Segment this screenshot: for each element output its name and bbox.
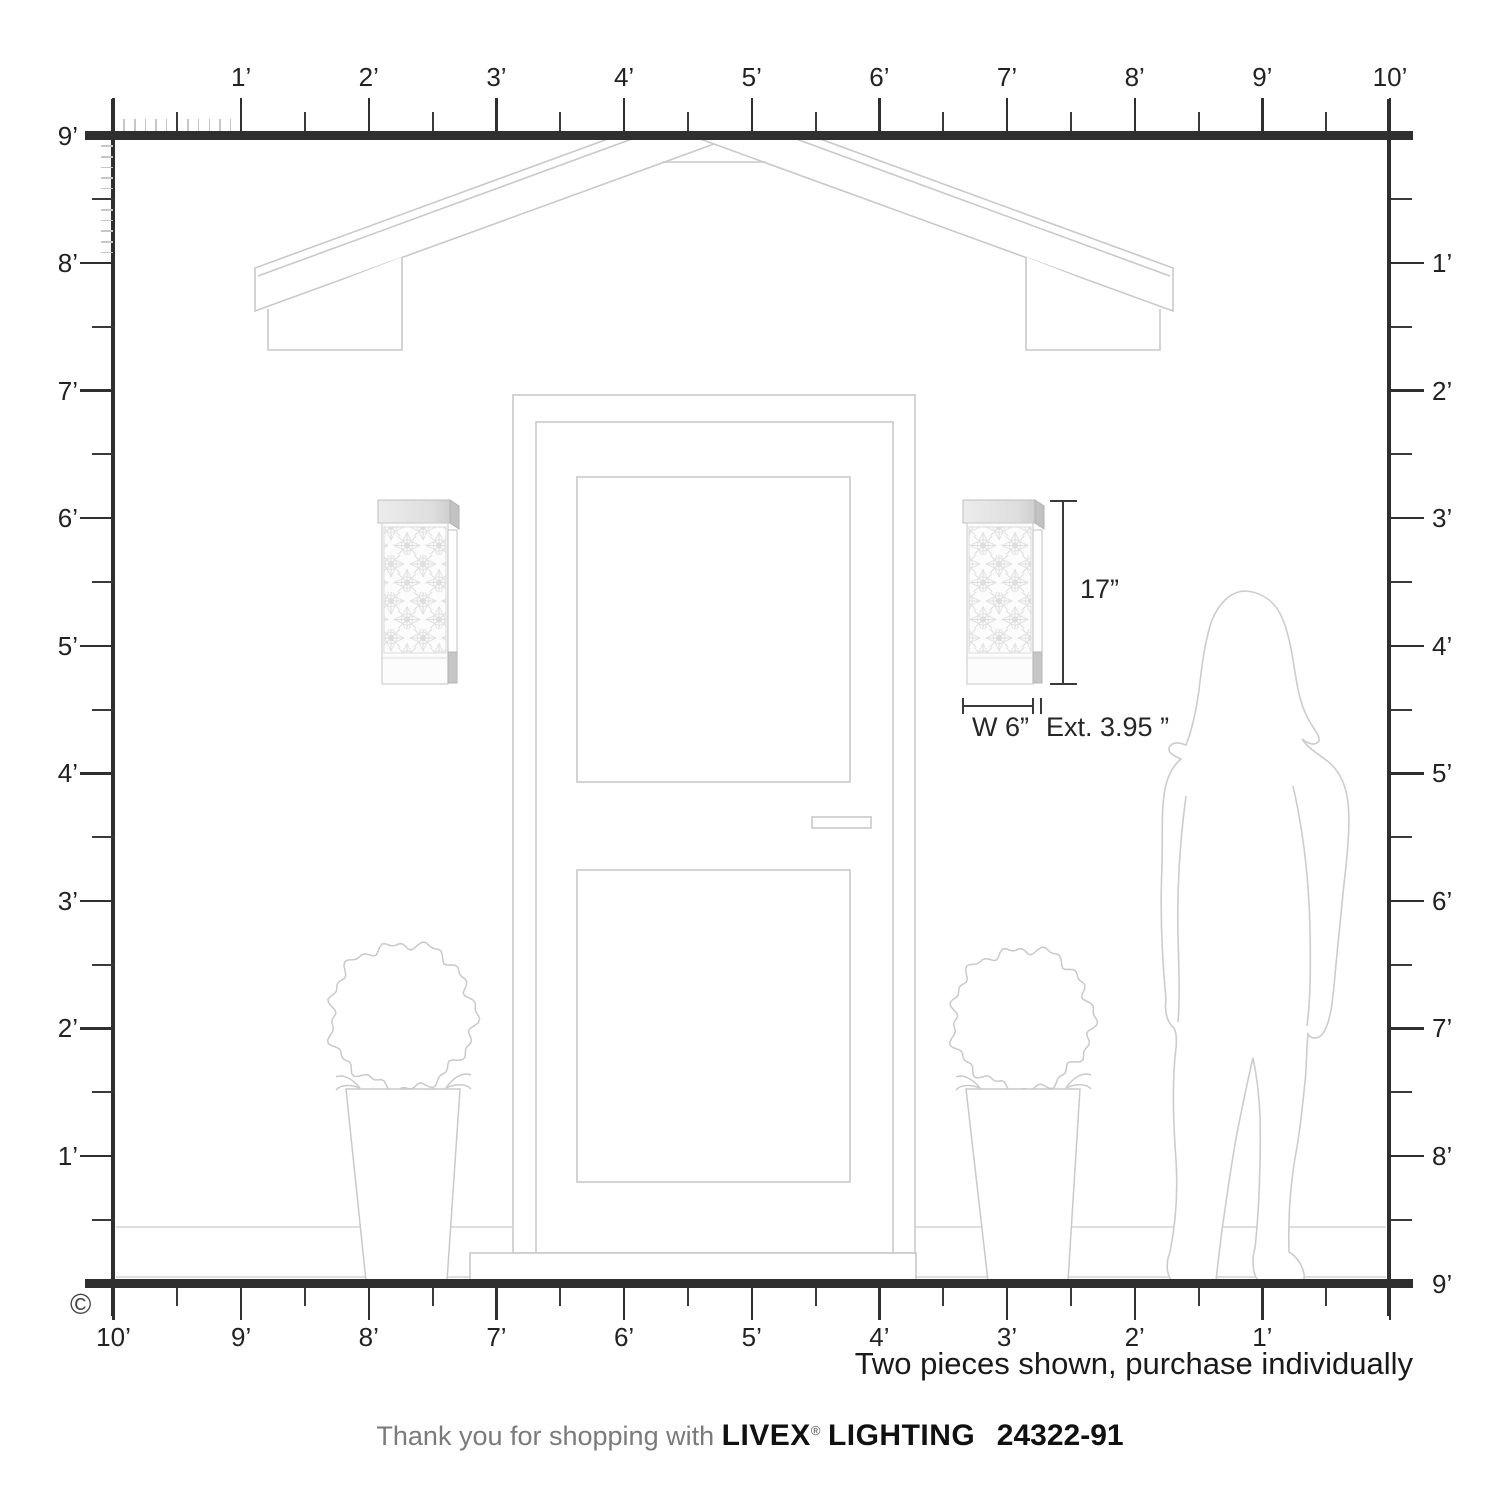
ruler-tick-top-inch bbox=[145, 119, 147, 131]
ruler-label-top: 6’ bbox=[869, 62, 889, 92]
width-dimension-label: W 6” bbox=[972, 712, 1029, 743]
ruler-tick-right-major bbox=[1391, 262, 1424, 265]
ruler-tick-bottom-half bbox=[304, 1288, 306, 1306]
ruler-tick-left-half bbox=[92, 453, 113, 455]
ruler-tick-right-major bbox=[1391, 1155, 1424, 1158]
ruler-tick-top-inch bbox=[134, 119, 136, 131]
ruler-tick-bottom-major bbox=[368, 1288, 371, 1320]
ruler-tick-bottom-half bbox=[432, 1288, 434, 1306]
ruler-tick-bottom-major bbox=[878, 1288, 881, 1320]
ruler-label-top: 2’ bbox=[359, 62, 379, 92]
footer-line: Thank you for shopping with LIVEX® LIGHT… bbox=[0, 1419, 1500, 1453]
footer-thanks-text: Thank you for shopping with bbox=[376, 1421, 714, 1451]
ruler-tick-top-major bbox=[878, 98, 881, 131]
ruler-tick-left-major bbox=[80, 262, 113, 265]
ruler-tick-top-major bbox=[1261, 98, 1264, 131]
ruler-tick-bottom-half bbox=[942, 1288, 944, 1306]
ruler-label-bottom: 7’ bbox=[486, 1322, 506, 1352]
ruler-tick-bottom-half bbox=[559, 1288, 561, 1306]
ruler-tick-top-major bbox=[751, 98, 754, 131]
ruler-tick-bottom-half bbox=[1070, 1288, 1072, 1306]
ruler-tick-left-half bbox=[92, 581, 113, 583]
ruler-tick-top-half bbox=[942, 112, 944, 131]
ruler-label-left: 8’ bbox=[58, 248, 78, 278]
ruler-label-bottom: 6’ bbox=[614, 1322, 634, 1352]
ruler-tick-top-half bbox=[432, 112, 434, 131]
height-dimension-label: 17” bbox=[1080, 574, 1119, 605]
ruler-label-top: 4’ bbox=[614, 62, 634, 92]
ruler-bar-bottom bbox=[85, 1279, 1413, 1288]
ruler-tick-top-inch bbox=[155, 119, 157, 131]
ruler-tick-bottom-major bbox=[1261, 1288, 1264, 1320]
ruler-label-left: 1’ bbox=[58, 1141, 78, 1171]
ruler-tick-left-inch bbox=[101, 188, 113, 190]
ruler-tick-left-half bbox=[92, 326, 113, 328]
ruler-tick-left-half bbox=[92, 198, 113, 200]
ruler-label-left: 4’ bbox=[58, 758, 78, 788]
ruler-tick-left-major bbox=[80, 645, 113, 648]
purchase-note: Two pieces shown, purchase individually bbox=[855, 1346, 1413, 1382]
ruler-tick-top-inch bbox=[166, 119, 168, 131]
copyright-symbol: © bbox=[70, 1289, 91, 1322]
ruler-tick-right-major bbox=[1391, 1027, 1424, 1030]
ruler-label-top: 5’ bbox=[742, 62, 762, 92]
ruler-tick-bottom-major bbox=[240, 1288, 243, 1320]
ruler-tick-left-inch bbox=[101, 209, 113, 211]
ruler-label-left: 2’ bbox=[58, 1013, 78, 1043]
brand-name: LIVEX bbox=[722, 1419, 811, 1452]
foot-rulers: 1’2’3’4’5’6’7’8’9’10’10’9’8’7’6’5’4’3’2’… bbox=[0, 0, 1500, 1500]
ruler-label-right: 1’ bbox=[1432, 248, 1452, 278]
brand-name-2: LIGHTING bbox=[828, 1419, 975, 1452]
ruler-label-left: 9’ bbox=[58, 121, 78, 151]
ruler-tick-bottom-major bbox=[1006, 1288, 1009, 1320]
ruler-label-top: 10’ bbox=[1373, 62, 1408, 92]
ruler-tick-top-inch bbox=[123, 119, 125, 131]
ruler-tick-left-half bbox=[92, 964, 113, 966]
ruler-bar-left bbox=[111, 99, 115, 1316]
ruler-tick-top-half bbox=[1198, 112, 1200, 131]
ruler-tick-bottom-half bbox=[815, 1288, 817, 1306]
ruler-tick-left-major bbox=[80, 1027, 113, 1030]
ruler-tick-right-half bbox=[1391, 581, 1412, 583]
ruler-bar-right bbox=[1387, 99, 1391, 1316]
ruler-tick-left-inch bbox=[101, 252, 113, 254]
ruler-tick-right-major bbox=[1391, 900, 1424, 903]
ruler-tick-top-major bbox=[240, 98, 243, 131]
ruler-tick-top-major bbox=[112, 98, 115, 131]
ruler-label-left: 3’ bbox=[58, 886, 78, 916]
ruler-label-bottom: 10’ bbox=[96, 1322, 131, 1352]
ruler-tick-right-half bbox=[1391, 709, 1412, 711]
ruler-tick-top-inch bbox=[230, 119, 232, 131]
ruler-tick-bottom-major bbox=[751, 1288, 754, 1320]
ruler-label-right: 7’ bbox=[1432, 1013, 1452, 1043]
ruler-tick-right-major bbox=[1391, 772, 1424, 775]
ruler-label-bottom: 8’ bbox=[359, 1322, 379, 1352]
ruler-tick-right-half bbox=[1391, 1091, 1412, 1093]
ruler-tick-top-major bbox=[368, 98, 371, 131]
ruler-tick-top-half bbox=[815, 112, 817, 131]
ruler-tick-top-major bbox=[1134, 98, 1137, 131]
ruler-tick-left-inch bbox=[101, 220, 113, 222]
ruler-tick-right-major bbox=[1391, 645, 1424, 648]
ruler-label-right: 6’ bbox=[1432, 886, 1452, 916]
ruler-tick-left-inch bbox=[101, 167, 113, 169]
ruler-tick-left-half bbox=[92, 1219, 113, 1221]
ruler-tick-left-inch bbox=[101, 230, 113, 232]
ruler-tick-left-half bbox=[92, 709, 113, 711]
ruler-tick-right-half bbox=[1391, 836, 1412, 838]
extension-dimension-label: Ext. 3.95 ” bbox=[1046, 712, 1169, 743]
ruler-label-top: 7’ bbox=[997, 62, 1017, 92]
ruler-tick-left-half bbox=[92, 836, 113, 838]
ruler-tick-left-major bbox=[80, 517, 113, 520]
ruler-tick-left-major bbox=[80, 1155, 113, 1158]
ruler-label-bottom: 5’ bbox=[742, 1322, 762, 1352]
ruler-label-top: 1’ bbox=[231, 62, 251, 92]
ruler-label-right: 4’ bbox=[1432, 631, 1452, 661]
ruler-tick-top-half bbox=[1070, 112, 1072, 131]
ruler-tick-bottom-major bbox=[1389, 1288, 1392, 1320]
ruler-label-right: 9’ bbox=[1432, 1269, 1452, 1299]
ruler-label-top: 9’ bbox=[1252, 62, 1272, 92]
ruler-tick-bottom-major bbox=[112, 1288, 115, 1320]
ruler-tick-top-half bbox=[1325, 112, 1327, 131]
ruler-label-top: 3’ bbox=[486, 62, 506, 92]
ruler-label-top: 8’ bbox=[1125, 62, 1145, 92]
ruler-tick-top-inch bbox=[198, 119, 200, 131]
ruler-tick-top-inch bbox=[187, 119, 189, 131]
ruler-tick-top-major bbox=[1006, 98, 1009, 131]
ruler-label-right: 3’ bbox=[1432, 503, 1452, 533]
ruler-tick-bottom-major bbox=[1134, 1288, 1137, 1320]
ruler-tick-top-half bbox=[304, 112, 306, 131]
ruler-tick-bottom-half bbox=[1325, 1288, 1327, 1306]
ruler-tick-bottom-major bbox=[495, 1288, 498, 1320]
ruler-tick-top-major bbox=[1389, 98, 1392, 131]
ruler-tick-top-half bbox=[559, 112, 561, 131]
ruler-tick-left-inch bbox=[101, 156, 113, 158]
ruler-tick-left-major bbox=[80, 772, 113, 775]
ruler-tick-bottom-major bbox=[623, 1288, 626, 1320]
ruler-tick-right-major bbox=[1391, 389, 1424, 392]
ruler-tick-bottom-half bbox=[176, 1288, 178, 1306]
ruler-tick-right-major bbox=[1391, 517, 1424, 520]
ruler-tick-right-half bbox=[1391, 1219, 1412, 1221]
ruler-tick-right-half bbox=[1391, 964, 1412, 966]
ruler-label-left: 6’ bbox=[58, 503, 78, 533]
ruler-tick-left-major bbox=[80, 389, 113, 392]
ruler-tick-top-major bbox=[495, 98, 498, 131]
ruler-tick-top-half bbox=[176, 112, 178, 131]
ruler-tick-right-half bbox=[1391, 453, 1412, 455]
ruler-tick-top-major bbox=[623, 98, 626, 131]
scale-diagram-page: 1’2’3’4’5’6’7’8’9’10’10’9’8’7’6’5’4’3’2’… bbox=[0, 0, 1500, 1500]
ruler-label-right: 2’ bbox=[1432, 376, 1452, 406]
ruler-label-right: 8’ bbox=[1432, 1141, 1452, 1171]
ruler-tick-left-inch bbox=[101, 145, 113, 147]
ruler-tick-top-half bbox=[687, 112, 689, 131]
ruler-label-left: 7’ bbox=[58, 376, 78, 406]
ruler-tick-left-inch bbox=[101, 177, 113, 179]
ruler-tick-bottom-half bbox=[687, 1288, 689, 1306]
ruler-label-left: 5’ bbox=[58, 631, 78, 661]
ruler-tick-left-half bbox=[92, 1091, 113, 1093]
ruler-tick-left-major bbox=[80, 900, 113, 903]
product-sku: 24322-91 bbox=[997, 1419, 1124, 1452]
ruler-tick-top-inch bbox=[219, 119, 221, 131]
ruler-label-right: 5’ bbox=[1432, 758, 1452, 788]
ruler-tick-bottom-half bbox=[1198, 1288, 1200, 1306]
ruler-tick-left-inch bbox=[101, 241, 113, 243]
ruler-tick-top-inch bbox=[209, 119, 211, 131]
ruler-label-bottom: 9’ bbox=[231, 1322, 251, 1352]
ruler-tick-right-half bbox=[1391, 198, 1412, 200]
registered-mark: ® bbox=[811, 1423, 821, 1438]
ruler-tick-right-half bbox=[1391, 326, 1412, 328]
ruler-bar-top bbox=[85, 131, 1413, 140]
